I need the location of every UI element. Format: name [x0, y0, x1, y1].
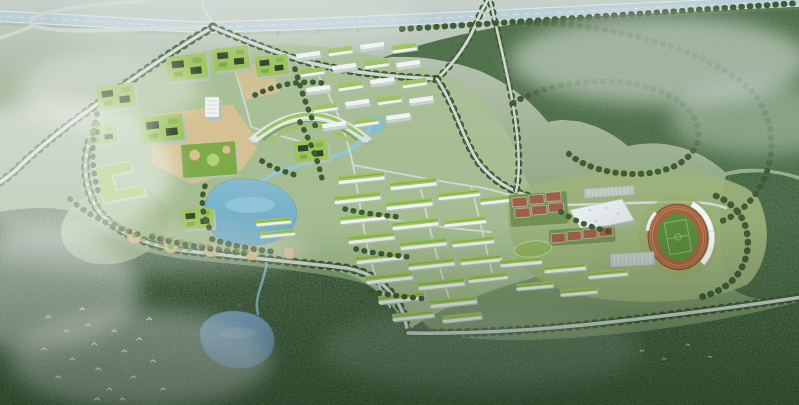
- vignette: [0, 0, 799, 405]
- aerial-rendering: [0, 0, 799, 405]
- masterplan-scene: [0, 0, 799, 405]
